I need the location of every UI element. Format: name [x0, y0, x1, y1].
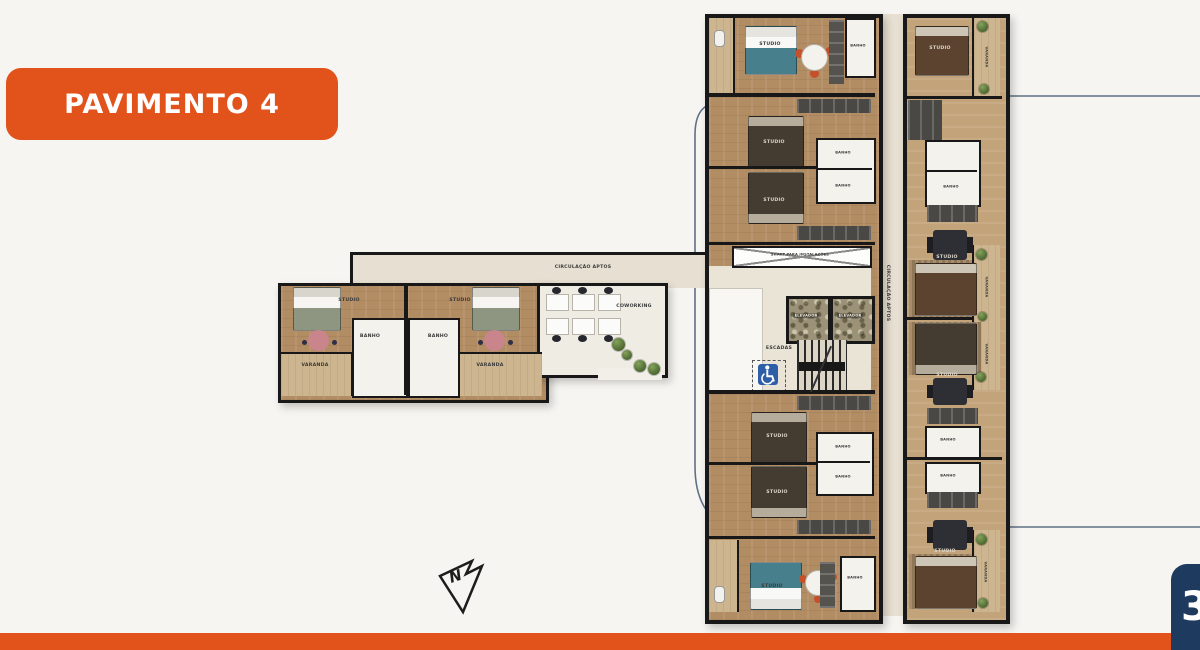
label-banho-a: BANHO [360, 334, 380, 339]
label-escadas: ESCADAS [766, 346, 792, 351]
bath-divider [816, 168, 872, 170]
bed-studio-top [745, 26, 797, 75]
plant [978, 598, 988, 608]
label-banho-bottom: BANHO [847, 576, 863, 580]
right-wall [903, 96, 1002, 99]
label-varanda-r4: VARANDA [983, 562, 987, 583]
bathroom-right-4 [925, 462, 981, 494]
dining-right-4 [933, 520, 967, 550]
label-studio-4: STUDIO [766, 434, 787, 439]
lounge-chair [714, 586, 725, 603]
label-banho-45a: BANHO [835, 445, 851, 449]
label-studio-2: STUDIO [763, 140, 784, 145]
elevator-1 [786, 296, 831, 344]
label-shaft: SHAFT PARA INSTALAÇÕES [771, 253, 829, 257]
lounge-chair [714, 30, 725, 47]
plant [648, 363, 660, 375]
bed-right-1 [915, 26, 969, 76]
balcony-unit-b [455, 352, 542, 396]
footer-accent-bar [0, 633, 1200, 650]
plant [977, 21, 988, 32]
kitchen-unit-3 [797, 226, 871, 240]
label-elevador-2: ELEVADOR [837, 314, 862, 319]
table-unit-b [484, 330, 505, 351]
unit-divider-wall [404, 284, 408, 395]
balcony-unit-a [281, 352, 353, 396]
kitchen-unit-4 [797, 396, 871, 410]
bathroom-unit-b [408, 318, 460, 398]
label-studio-r3: STUDIO [936, 373, 957, 378]
plant [979, 84, 989, 94]
right-wall [903, 317, 973, 320]
bathroom-right-2 [925, 140, 981, 207]
label-studio-a: STUDIO [338, 298, 359, 303]
bed-right-2 [915, 263, 977, 316]
label-studio-r4: STUDIO [934, 549, 955, 554]
bathroom-studio-top [845, 18, 876, 78]
kitchen-unit-5 [797, 520, 871, 534]
label-coworking: COWORKING [616, 304, 651, 309]
plant [612, 338, 625, 351]
label-varanda-r1: VARANDA [984, 47, 988, 68]
bathroom-unit-a [352, 318, 408, 398]
slide-canvas: PAVIMENTO 4 [0, 0, 1200, 650]
elevator-2 [830, 296, 875, 344]
table-unit-a [308, 330, 329, 351]
label-circulacao-h: CIRCULAÇÃO APTOS [555, 265, 612, 270]
label-banho-45b: BANHO [835, 475, 851, 479]
plant [622, 350, 632, 360]
plant [976, 249, 987, 260]
label-banho-23a: BANHO [835, 151, 851, 155]
plant [634, 360, 646, 372]
label-banho-23b: BANHO [835, 184, 851, 188]
label-varanda-r3: VARANDA [984, 344, 988, 365]
floor-title-badge: PAVIMENTO 4 [6, 68, 338, 140]
plant [978, 312, 987, 321]
page-number-tab[interactable]: 3 [1171, 564, 1200, 650]
label-studio-top: STUDIO [759, 42, 780, 47]
label-varanda-b: VARANDA [476, 363, 503, 368]
kitchen-right-2 [927, 205, 978, 222]
tower-wall [705, 93, 875, 97]
coworking-desk [572, 318, 595, 335]
label-banho-r4: BANHO [940, 474, 956, 478]
label-circulacao-v: CIRCULAÇÃO APTOS [886, 265, 891, 322]
plant [976, 534, 987, 545]
tower-wall [705, 462, 816, 465]
coworking-desk [546, 318, 569, 335]
label-studio-r1: STUDIO [929, 46, 950, 51]
wheelchair-icon [758, 364, 778, 385]
floor-title-label: PAVIMENTO 4 [64, 89, 280, 120]
north-letter: N [447, 566, 465, 587]
bathroom-right-3 [925, 426, 981, 460]
bed-right-3 [915, 323, 977, 375]
kitchen-right-4 [927, 492, 978, 508]
corridor-left-wall [350, 252, 353, 285]
label-varanda-r2: VARANDA [984, 277, 988, 298]
tower-wall [705, 390, 875, 394]
label-banho-b: BANHO [428, 334, 448, 339]
page-number: 3 [1181, 584, 1200, 630]
label-studio-3: STUDIO [763, 198, 784, 203]
kitchen-studio-bottom [820, 562, 835, 608]
label-studio-r2: STUDIO [936, 255, 957, 260]
table-studio-top [801, 44, 828, 71]
kitchen-studio-top [829, 20, 844, 84]
bed-unit-a [293, 287, 341, 331]
right-wall [903, 457, 1002, 460]
tower-wall [705, 242, 875, 245]
kitchen-right-1 [908, 100, 942, 140]
tower-wall [705, 166, 816, 169]
bath-divider [816, 461, 870, 463]
plant [976, 372, 986, 382]
bathroom-studio-bottom [840, 556, 876, 612]
dining-right-3 [933, 378, 967, 405]
coworking-desk [546, 294, 569, 311]
label-elevador-1: ELEVADOR [793, 314, 818, 319]
label-studio-5: STUDIO [766, 490, 787, 495]
coworking-desk [572, 294, 595, 311]
kitchen-right-3 [927, 408, 978, 424]
installation-shaft [732, 246, 872, 268]
label-banho-top: BANHO [850, 44, 866, 48]
bathroom-units-2-3 [816, 138, 876, 204]
kitchen-unit-2 [797, 99, 871, 113]
bed-unit-b [472, 287, 520, 331]
label-studio-bottom: STUDIO [761, 584, 782, 589]
coworking-desk [598, 318, 621, 335]
bath-divider [925, 170, 977, 172]
label-varanda-a: VARANDA [301, 363, 328, 368]
label-banho-r2: BANHO [943, 185, 959, 189]
label-banho-r3: BANHO [940, 438, 956, 442]
north-arrow: N [436, 558, 488, 616]
bathroom-units-4-5 [816, 432, 874, 496]
tower-wall [705, 536, 875, 539]
bed-right-4 [915, 556, 977, 609]
label-studio-b: STUDIO [449, 298, 470, 303]
